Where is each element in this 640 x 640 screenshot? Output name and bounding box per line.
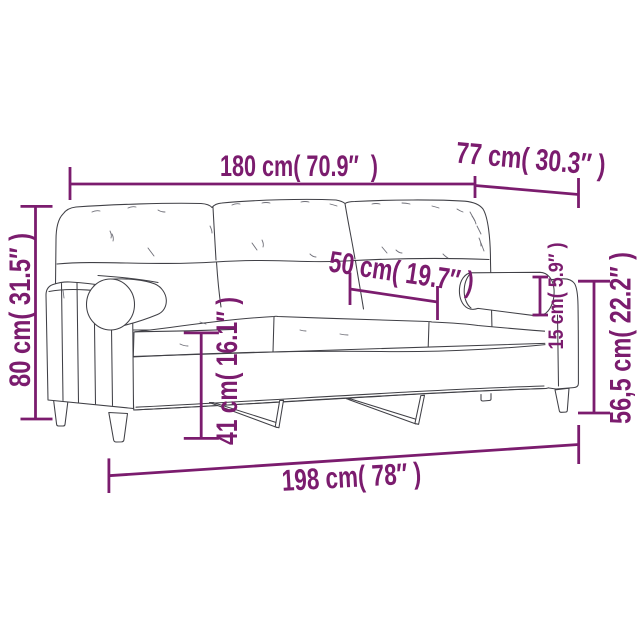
svg-text:180 cm( 70.9″ ): 180 cm( 70.9″ ) <box>220 150 378 183</box>
svg-text:56,5 cm( 22.2″ ): 56,5 cm( 22.2″ ) <box>605 252 638 424</box>
svg-text:80 cm( 31.5″ ): 80 cm( 31.5″ ) <box>4 233 37 387</box>
svg-text:15 cm( 5.9″ ): 15 cm( 5.9″ ) <box>545 243 568 350</box>
svg-text:41 cm( 16.1″ ): 41 cm( 16.1″ ) <box>211 297 244 445</box>
